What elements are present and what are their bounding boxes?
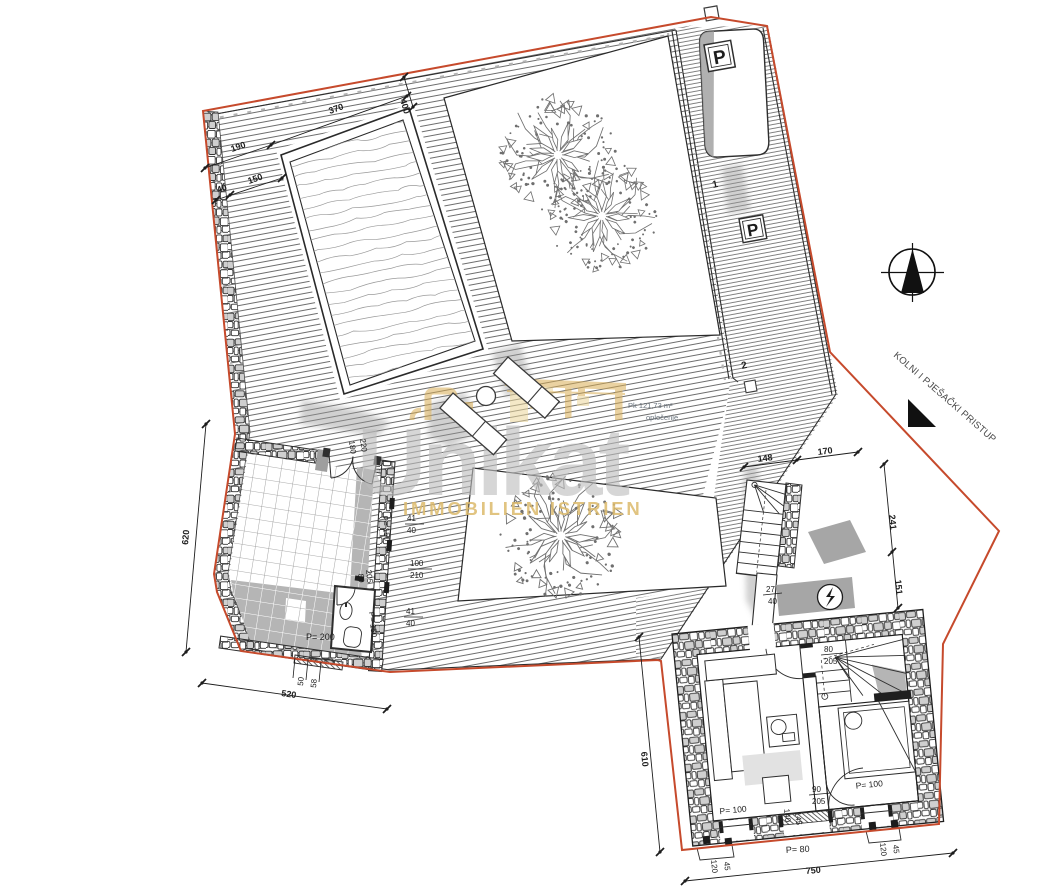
svg-text:Pk 121,73 m²: Pk 121,73 m² — [628, 401, 673, 410]
svg-text:58: 58 — [309, 678, 319, 688]
svg-text:40: 40 — [407, 526, 416, 535]
svg-text:45: 45 — [891, 844, 901, 854]
svg-text:205: 205 — [812, 797, 826, 806]
svg-text:80: 80 — [824, 645, 833, 654]
svg-text:205: 205 — [364, 569, 374, 584]
svg-text:120: 120 — [878, 842, 888, 857]
svg-text:241: 241 — [887, 514, 899, 530]
svg-text:520: 520 — [281, 688, 297, 700]
svg-text:45: 45 — [722, 861, 732, 871]
svg-text:41: 41 — [407, 514, 416, 523]
svg-text:100: 100 — [410, 559, 424, 568]
svg-text:151: 151 — [893, 579, 905, 595]
svg-text:opločenje: opločenje — [646, 413, 678, 422]
svg-text:90: 90 — [812, 785, 821, 794]
svg-text:P= 80: P= 80 — [786, 844, 810, 855]
svg-text:P= 200: P= 200 — [306, 632, 335, 642]
svg-text:750: 750 — [805, 865, 821, 876]
svg-text:170: 170 — [817, 445, 833, 457]
svg-text:40: 40 — [768, 597, 777, 606]
svg-text:148: 148 — [757, 452, 773, 464]
svg-text:40: 40 — [406, 619, 415, 628]
svg-text:610: 610 — [639, 751, 651, 767]
svg-text:140: 140 — [782, 808, 792, 823]
svg-text:27: 27 — [766, 585, 775, 594]
svg-text:220: 220 — [358, 438, 369, 453]
svg-text:50: 50 — [296, 676, 306, 686]
svg-text:180: 180 — [347, 440, 358, 455]
svg-text:145: 145 — [793, 811, 803, 826]
svg-text:41: 41 — [406, 607, 415, 616]
svg-text:205: 205 — [824, 657, 838, 666]
svg-text:620: 620 — [180, 529, 191, 545]
svg-text:80: 80 — [356, 573, 366, 583]
svg-text:120: 120 — [709, 859, 719, 874]
svg-text:IMMOBILIEN ISTRIEN: IMMOBILIEN ISTRIEN — [403, 498, 643, 519]
svg-text:210: 210 — [410, 571, 424, 580]
